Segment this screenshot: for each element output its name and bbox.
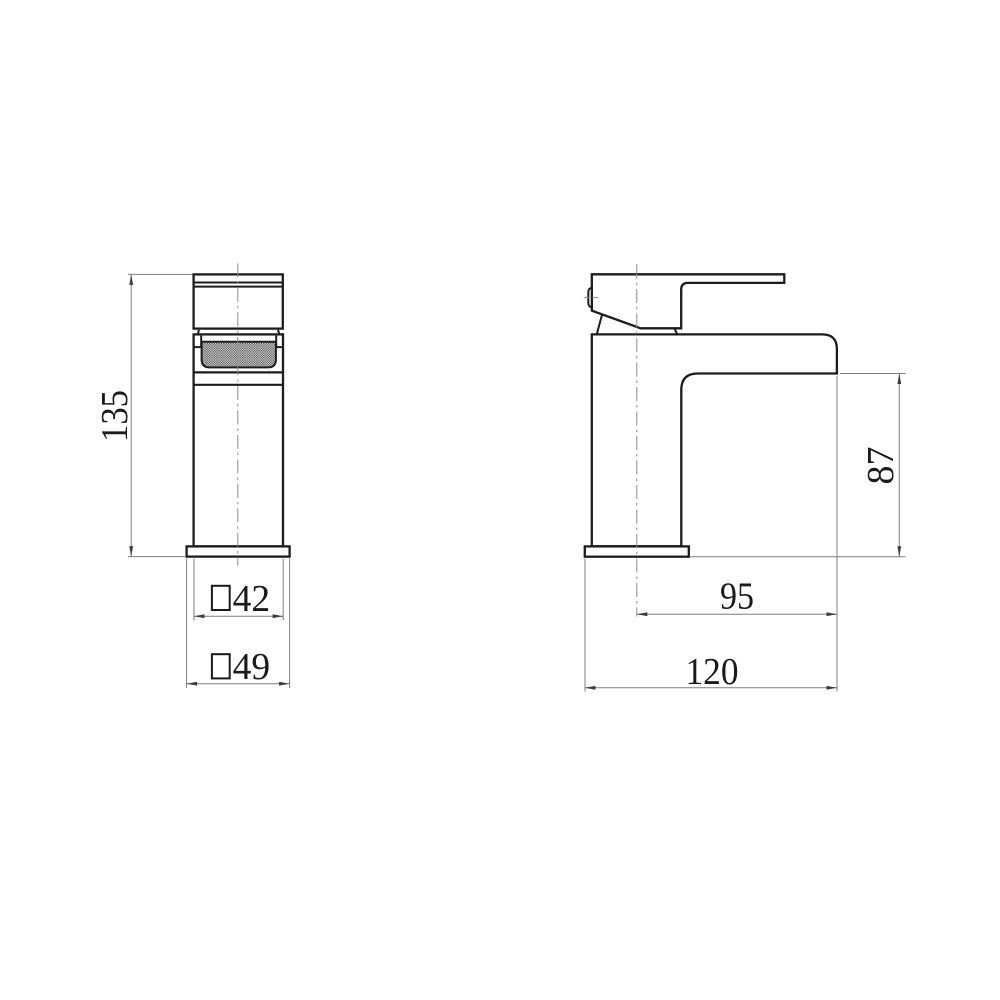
svg-text:135: 135 (94, 390, 136, 442)
svg-text:120: 120 (686, 651, 739, 693)
svg-text:42: 42 (233, 578, 271, 620)
svg-text:49: 49 (233, 646, 271, 688)
svg-text:95: 95 (720, 576, 754, 618)
svg-text:87: 87 (860, 447, 902, 485)
